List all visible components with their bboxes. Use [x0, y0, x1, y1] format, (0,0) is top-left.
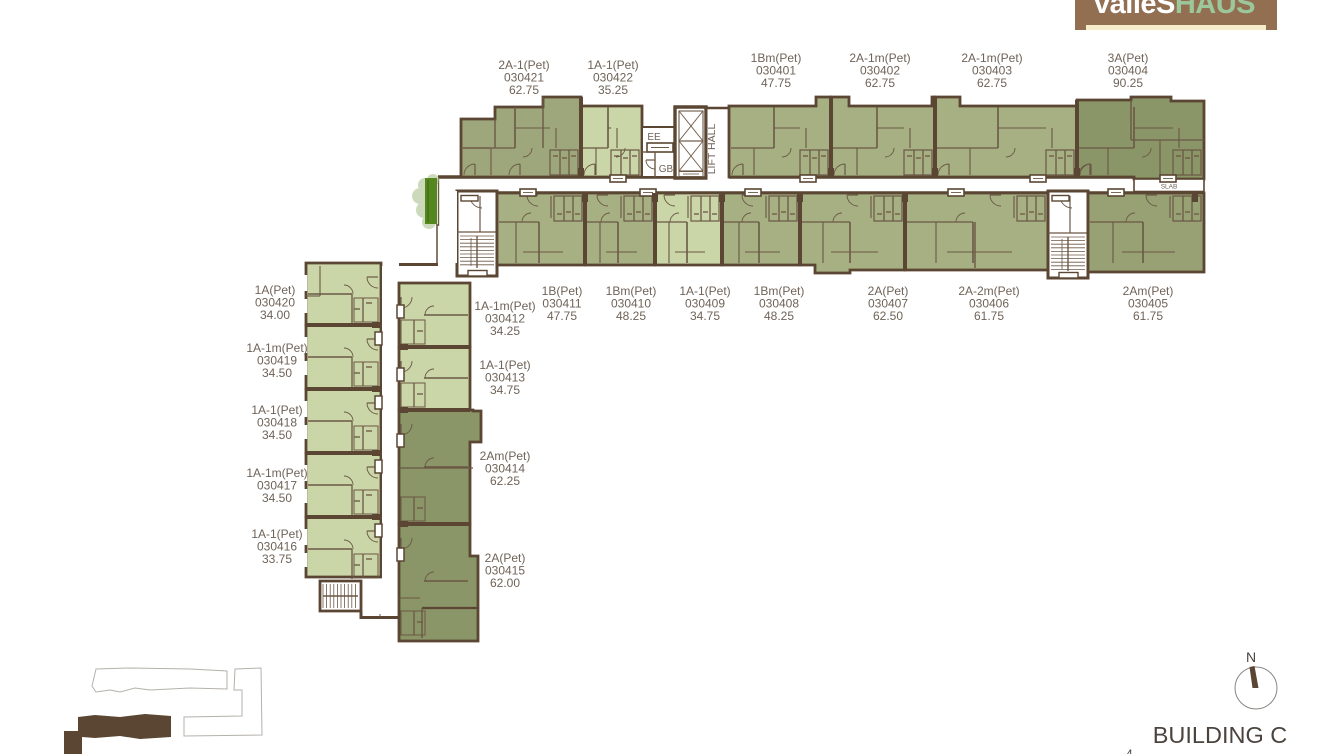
svg-text:4: 4 [1126, 747, 1133, 754]
svg-text:62.75: 62.75 [977, 76, 1007, 90]
svg-text:90.25: 90.25 [1113, 76, 1143, 90]
svg-text:35.25: 35.25 [598, 83, 628, 97]
svg-text:61.75: 61.75 [1133, 309, 1163, 323]
svg-text:34.75: 34.75 [490, 383, 520, 397]
svg-text:BUILDING C: BUILDING C [1153, 722, 1288, 748]
svg-text:62.00: 62.00 [490, 576, 520, 590]
svg-text:61.75: 61.75 [974, 309, 1004, 323]
svg-text:34.50: 34.50 [262, 366, 292, 380]
svg-text:47.75: 47.75 [547, 309, 577, 323]
svg-text:62.75: 62.75 [865, 76, 895, 90]
svg-text:LIFT HALL: LIFT HALL [706, 124, 718, 175]
svg-text:34.00: 34.00 [260, 308, 290, 322]
svg-text:N: N [1246, 649, 1256, 665]
svg-text:34.25: 34.25 [490, 324, 520, 338]
svg-text:33.75: 33.75 [262, 552, 292, 566]
svg-text:34.50: 34.50 [262, 491, 292, 505]
svg-text:62.50: 62.50 [873, 309, 903, 323]
svg-text:48.25: 48.25 [616, 309, 646, 323]
svg-text:47.75: 47.75 [761, 76, 791, 90]
svg-text:62.25: 62.25 [490, 474, 520, 488]
svg-text:GB: GB [659, 164, 674, 175]
svg-text:valleSHAUS: valleSHAUS [1094, 0, 1255, 20]
svg-text:62.75: 62.75 [509, 83, 539, 97]
svg-text:SLAB: SLAB [1161, 184, 1178, 191]
svg-text:34.50: 34.50 [262, 428, 292, 442]
svg-text:EE: EE [647, 132, 661, 143]
svg-text:34.75: 34.75 [690, 309, 720, 323]
svg-text:48.25: 48.25 [764, 309, 794, 323]
